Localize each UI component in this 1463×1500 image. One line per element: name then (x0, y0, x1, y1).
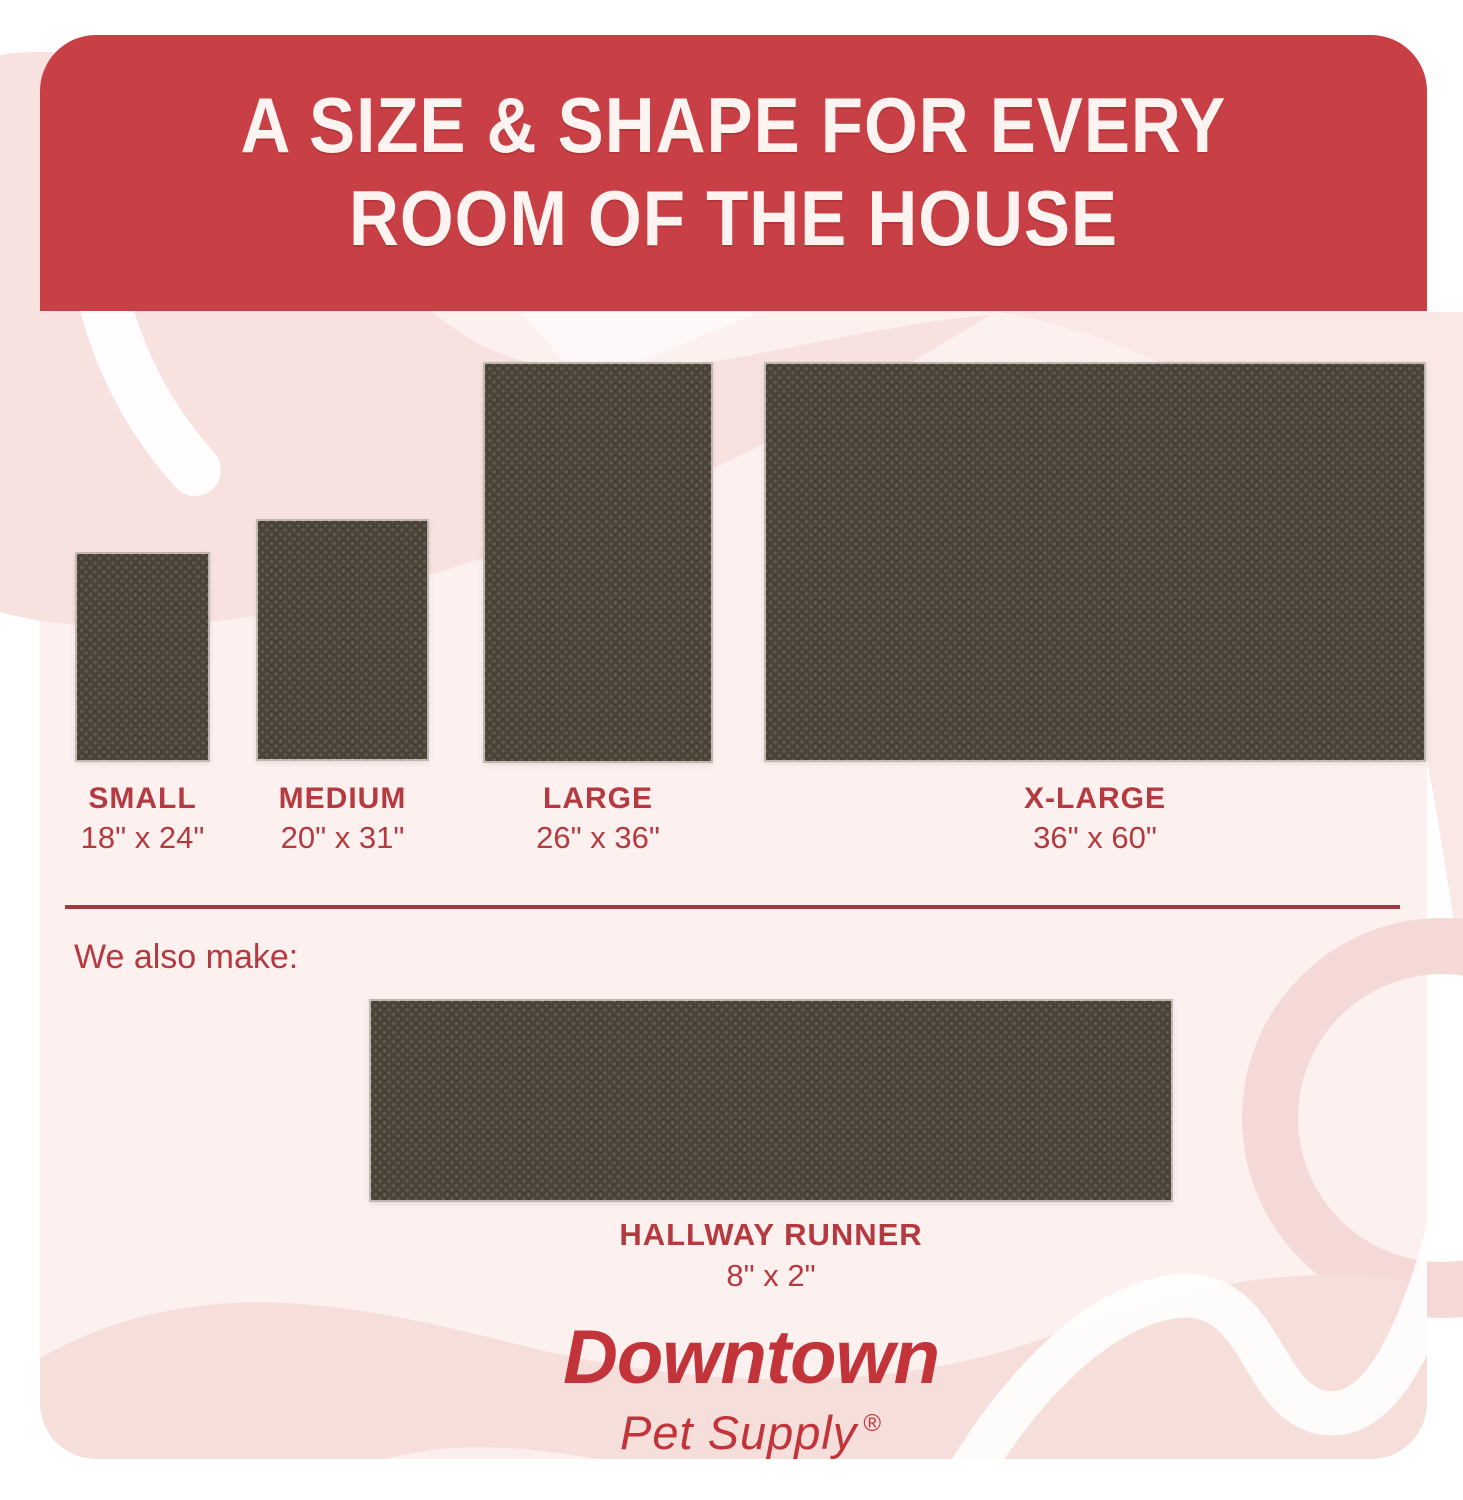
mat-swatch-hallway-runner (369, 999, 1173, 1202)
size-dimensions: 26" x 36" (483, 818, 713, 858)
size-label: X-LARGE (764, 780, 1426, 818)
mat-swatch-small (75, 552, 210, 762)
size-caption-medium: MEDIUM 20" x 31" (256, 780, 429, 858)
registered-mark: ® (863, 1410, 882, 1437)
mat-swatch-medium (256, 519, 429, 761)
brand-tagline-row: Pet Supply® (440, 1398, 1062, 1459)
runner-caption: HALLWAY RUNNER 8" x 2" (369, 1215, 1173, 1297)
mat-swatch-xlarge (764, 362, 1426, 762)
brand-logo: Downtown Pet Supply® (440, 1318, 1062, 1459)
decor-white-ribbon-2 (300, 1464, 700, 1500)
size-caption-small: SMALL 18" x 24" (75, 780, 210, 858)
header-banner: A SIZE & SHAPE FOR EVERY ROOM OF THE HOU… (40, 35, 1427, 311)
size-caption-large: LARGE 26" x 36" (483, 780, 713, 858)
header-title-line1: A SIZE & SHAPE FOR EVERY (241, 76, 1227, 176)
size-caption-xlarge: X-LARGE 36" x 60" (764, 780, 1426, 858)
section-divider (65, 905, 1400, 909)
size-label: SMALL (75, 780, 210, 818)
brand-name: Downtown (440, 1318, 1062, 1398)
size-dimensions: 18" x 24" (75, 818, 210, 858)
header-title-line2: ROOM OF THE HOUSE (349, 169, 1118, 269)
size-dimensions: 8" x 2" (369, 1255, 1173, 1297)
size-label: LARGE (483, 780, 713, 818)
infographic-canvas: A SIZE & SHAPE FOR EVERY ROOM OF THE HOU… (0, 0, 1463, 1500)
mat-swatch-large (483, 362, 713, 763)
size-dimensions: 20" x 31" (256, 818, 429, 858)
size-label: MEDIUM (256, 780, 429, 818)
brand-tagline: Pet Supply (620, 1406, 857, 1459)
size-dimensions: 36" x 60" (764, 818, 1426, 858)
also-make-text: We also make: (74, 938, 298, 977)
size-label: HALLWAY RUNNER (369, 1215, 1173, 1255)
